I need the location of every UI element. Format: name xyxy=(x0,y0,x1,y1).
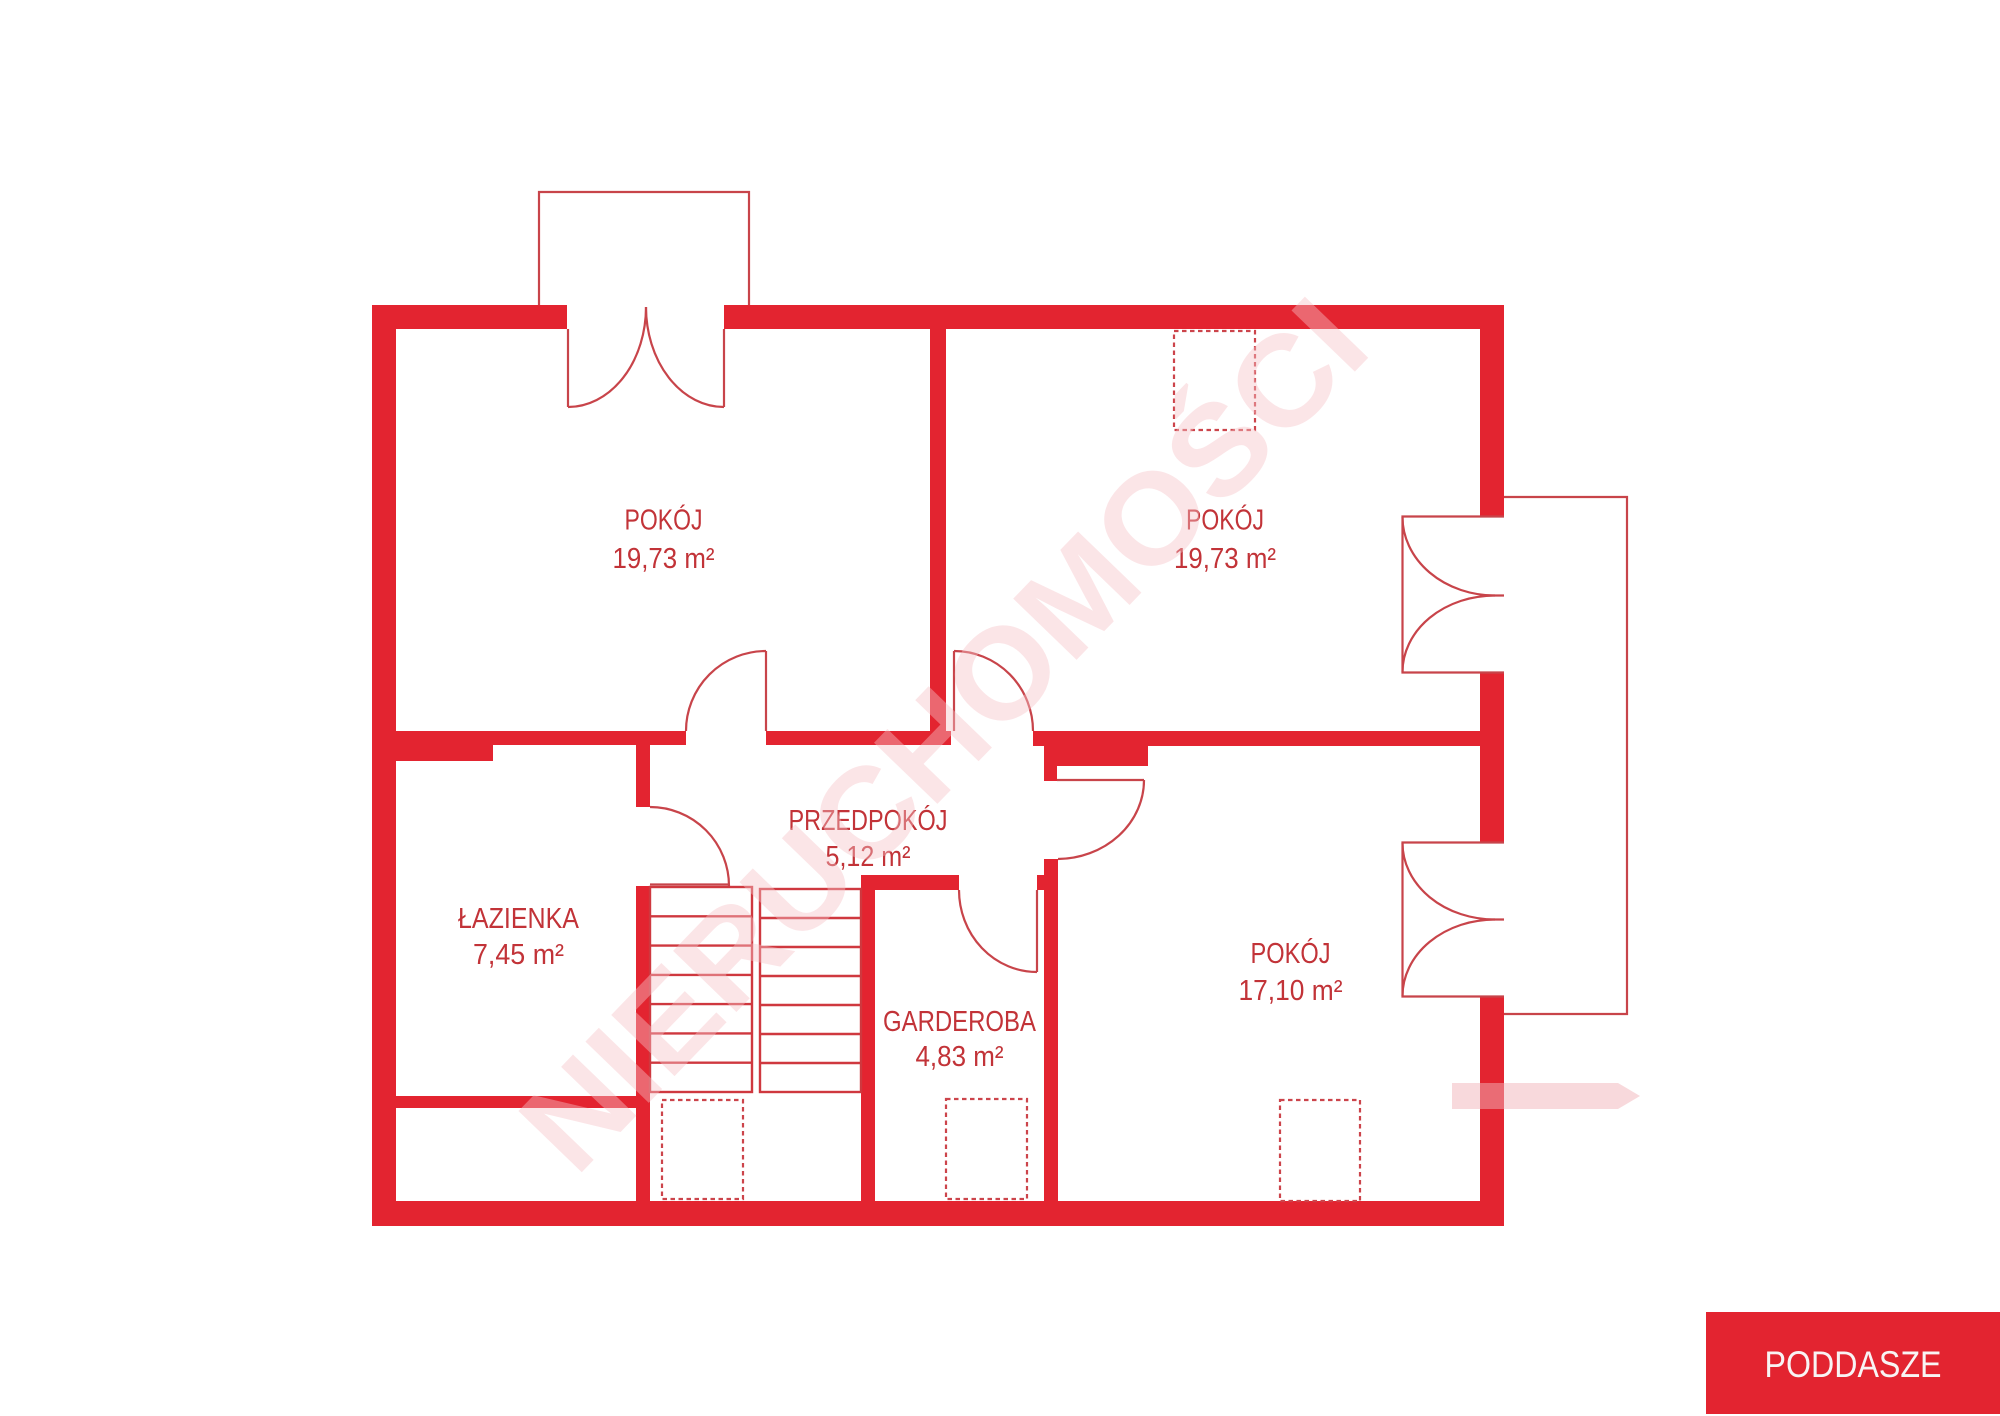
svg-text:PODDASZE: PODDASZE xyxy=(1765,1344,1942,1385)
svg-text:ŁAZIENKA: ŁAZIENKA xyxy=(458,903,580,935)
svg-text:17,10 m²: 17,10 m² xyxy=(1239,975,1343,1007)
svg-text:7,45 m²: 7,45 m² xyxy=(473,939,564,971)
svg-text:4,83 m²: 4,83 m² xyxy=(916,1041,1004,1073)
svg-text:19,73 m²: 19,73 m² xyxy=(613,543,715,575)
svg-text:POKÓJ: POKÓJ xyxy=(1251,937,1331,970)
svg-text:POKÓJ: POKÓJ xyxy=(625,504,703,537)
svg-text:GARDEROBA: GARDEROBA xyxy=(883,1006,1037,1038)
